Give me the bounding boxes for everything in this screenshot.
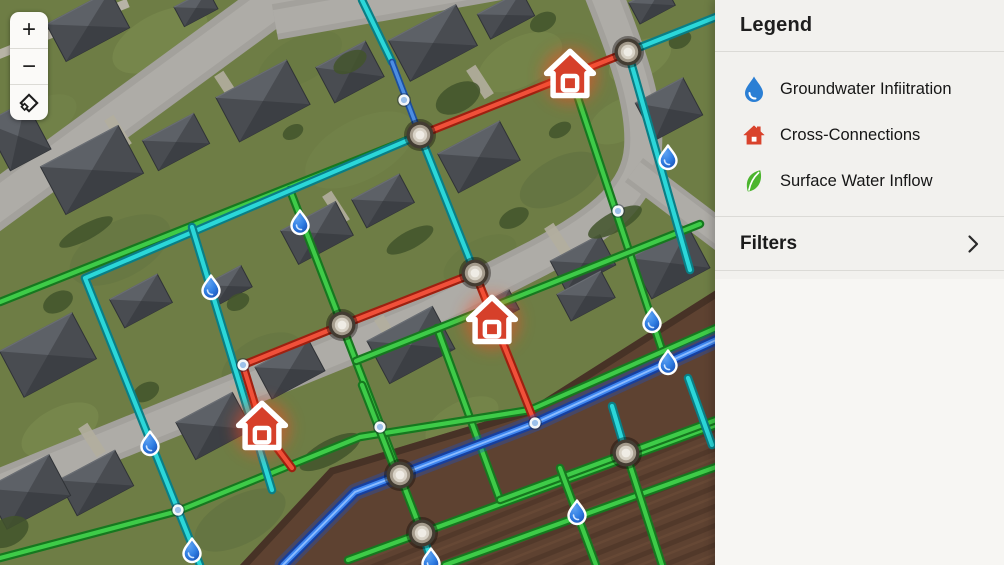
- legend-item-surface-water: Surface Water Inflow: [715, 158, 1004, 204]
- zoom-in-button[interactable]: +: [10, 12, 48, 48]
- legend-header: Legend: [715, 0, 1004, 52]
- connection-dot[interactable]: [528, 416, 542, 430]
- map-svg: [0, 0, 715, 565]
- panel-empty-area: [715, 279, 1004, 565]
- legend-title: Legend: [740, 14, 812, 37]
- cross-connection-marker[interactable]: [543, 49, 598, 104]
- legend-item-label: Surface Water Inflow: [780, 172, 933, 191]
- diamond-icon: [18, 92, 40, 114]
- map-zoom-controls: + −: [10, 12, 48, 120]
- leaf-icon: [740, 166, 768, 196]
- legend-item-label: Groundwater Infiitration: [780, 80, 952, 99]
- legend-item-cross-connections: Cross-Connections: [715, 112, 1004, 158]
- manhole-junction-node[interactable]: [406, 517, 438, 549]
- legend-item-groundwater: Groundwater Infiitration: [715, 66, 1004, 112]
- manhole-junction-node[interactable]: [612, 36, 644, 68]
- manhole-junction-node[interactable]: [384, 459, 416, 491]
- utility-map-app: + − Legend: [0, 0, 1004, 565]
- connection-dot[interactable]: [611, 204, 625, 218]
- chevron-right-icon: [967, 234, 979, 254]
- manhole-junction-node[interactable]: [404, 119, 436, 151]
- cross-connection-marker[interactable]: [465, 295, 520, 350]
- house-icon: [740, 120, 768, 150]
- droplet-icon: [740, 74, 768, 104]
- map-canvas[interactable]: + −: [0, 0, 715, 565]
- connection-dot[interactable]: [373, 420, 387, 434]
- manhole-junction-node[interactable]: [610, 437, 642, 469]
- legend-item-label: Cross-Connections: [780, 126, 920, 145]
- manhole-junction-node[interactable]: [459, 257, 491, 289]
- shape-tool-button[interactable]: [10, 84, 48, 120]
- zoom-out-button[interactable]: −: [10, 48, 48, 84]
- aerial-basemap: [0, 0, 715, 565]
- legend-panel: Legend Groundwater Infiitration: [715, 0, 1004, 565]
- filters-row[interactable]: Filters: [715, 217, 1004, 271]
- cross-connection-marker[interactable]: [235, 401, 290, 456]
- connection-dot[interactable]: [236, 358, 250, 372]
- manhole-junction-node[interactable]: [326, 309, 358, 341]
- filters-label: Filters: [740, 233, 797, 255]
- connection-dot[interactable]: [171, 503, 185, 517]
- connection-dot[interactable]: [397, 93, 411, 107]
- legend-items: Groundwater Infiitration Cross-Connecti: [715, 52, 1004, 217]
